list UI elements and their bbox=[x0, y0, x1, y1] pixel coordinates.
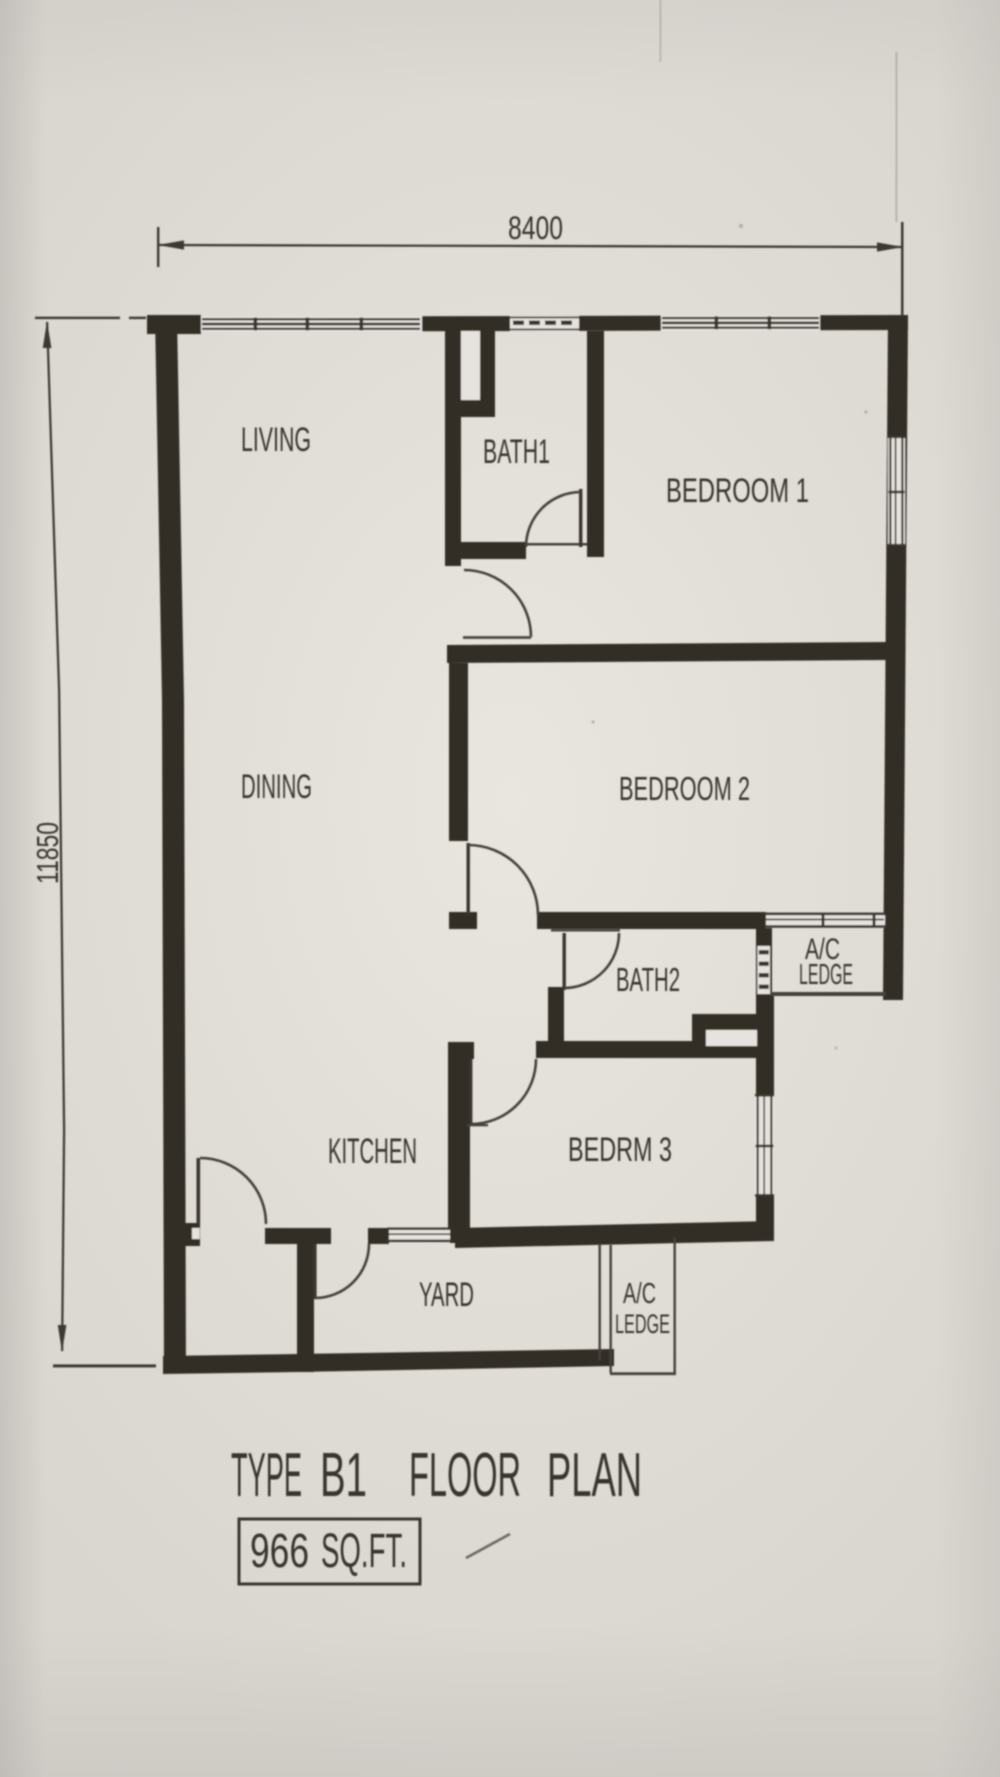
svg-text:KITCHEN: KITCHEN bbox=[328, 1132, 417, 1171]
svg-text:PLAN: PLAN bbox=[547, 1441, 642, 1510]
svg-text:LEDGE: LEDGE bbox=[615, 1309, 670, 1339]
svg-text:YARD: YARD bbox=[419, 1276, 474, 1314]
svg-text:8400: 8400 bbox=[508, 210, 563, 246]
svg-text:DINING: DINING bbox=[241, 768, 312, 806]
svg-text:BATH1: BATH1 bbox=[483, 433, 550, 471]
svg-text:LIVING: LIVING bbox=[241, 421, 311, 459]
svg-text:SQ.FT.: SQ.FT. bbox=[321, 1525, 407, 1578]
svg-text:BEDROOM 1: BEDROOM 1 bbox=[666, 472, 809, 510]
svg-text:966: 966 bbox=[250, 1525, 309, 1578]
svg-text:A/C: A/C bbox=[623, 1278, 656, 1310]
svg-text:TYPE: TYPE bbox=[231, 1441, 302, 1510]
svg-text:11850: 11850 bbox=[30, 822, 65, 884]
svg-text:BEDROOM 2: BEDROOM 2 bbox=[619, 770, 750, 807]
svg-text:FLOOR: FLOOR bbox=[409, 1441, 521, 1510]
svg-text:BATH2: BATH2 bbox=[616, 961, 680, 998]
svg-text:LEDGE: LEDGE bbox=[799, 959, 853, 991]
svg-text:BEDRM 3: BEDRM 3 bbox=[568, 1131, 672, 1169]
svg-text:B1: B1 bbox=[320, 1441, 367, 1510]
